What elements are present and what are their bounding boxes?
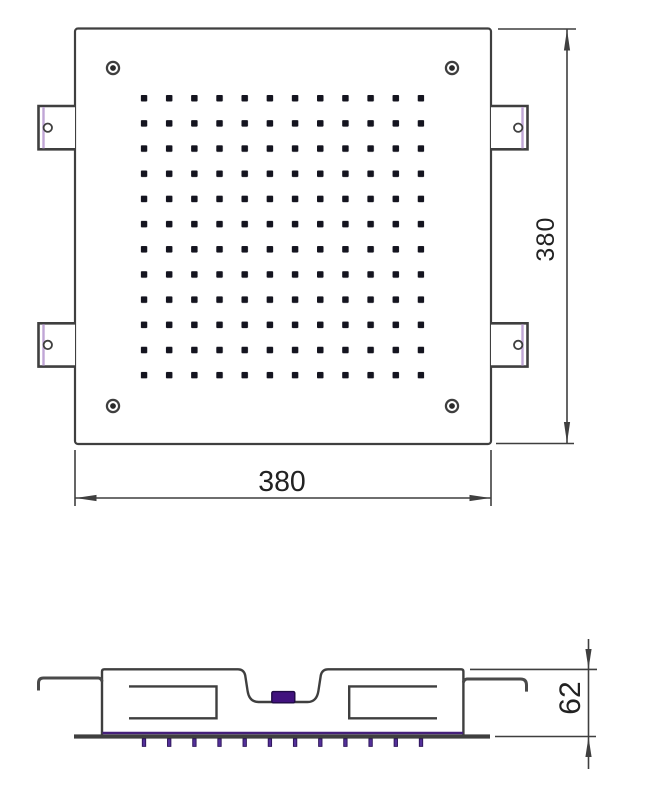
svg-text:380: 380 [532,216,560,261]
svg-text:380: 380 [258,466,306,498]
svg-text:62: 62 [554,681,587,714]
